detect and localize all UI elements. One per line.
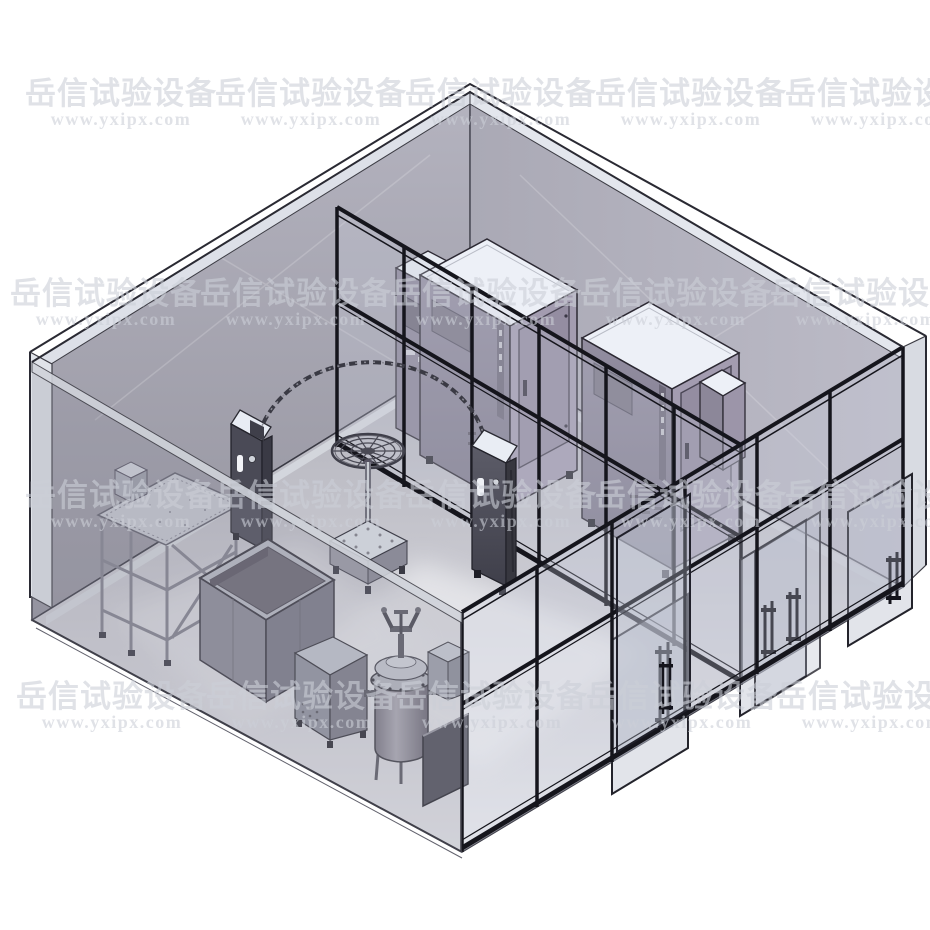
watermark-text: 岳信试验设备 xyxy=(595,478,787,514)
watermark-url: www.yxipx.com xyxy=(802,712,930,732)
watermark-text: 岳信试验设备 xyxy=(215,478,407,514)
watermark-url: www.yxipx.com xyxy=(431,109,572,129)
watermark-text: 岳信试验设备 xyxy=(200,276,392,312)
watermark-text: 岳信试验设备 xyxy=(396,679,588,715)
watermark-url: www.yxipx.com xyxy=(811,109,930,129)
watermark-text: 岳信试验设备 xyxy=(776,679,930,715)
watermark-url: www.yxipx.com xyxy=(36,309,177,329)
watermark-text: 岳信试验设备 xyxy=(16,679,208,715)
watermark-text: 岳信试验设备 xyxy=(595,76,787,112)
watermark-url: www.yxipx.com xyxy=(796,309,930,329)
watermark-url: www.yxipx.com xyxy=(606,309,747,329)
watermark-url: www.yxipx.com xyxy=(811,511,930,531)
cad-render-canvas: 岳信试验设备www.yxipx.com岳信试验设备www.yxipx.com岳信… xyxy=(0,0,930,930)
watermark-text: 岳信试验设备 xyxy=(770,276,930,312)
watermark-text: 岳信试验设备 xyxy=(586,679,778,715)
watermark-text: 岳信试验设备 xyxy=(25,478,217,514)
watermark-text: 岳信试验设备 xyxy=(390,276,582,312)
watermark-text: 岳信试验设备 xyxy=(25,76,217,112)
watermark-text: 岳信试验设备 xyxy=(10,276,202,312)
watermark-url: www.yxipx.com xyxy=(42,712,183,732)
test-lab-3d-scene: 岳信试验设备www.yxipx.com岳信试验设备www.yxipx.com岳信… xyxy=(0,0,930,930)
tower-knob xyxy=(249,456,256,463)
watermark-text: 岳信试验设备 xyxy=(785,76,930,112)
watermark-url: www.yxipx.com xyxy=(241,511,382,531)
watermark-text: 岳信试验设备 xyxy=(215,76,407,112)
watermark-url: www.yxipx.com xyxy=(416,309,557,329)
watermark-text: 岳信试验设备 xyxy=(580,276,772,312)
watermark-text: 岳信试验设备 xyxy=(405,478,597,514)
watermark-url: www.yxipx.com xyxy=(431,511,572,531)
watermark-url: www.yxipx.com xyxy=(422,712,563,732)
watermark-url: www.yxipx.com xyxy=(612,712,753,732)
watermark-url: www.yxipx.com xyxy=(621,511,762,531)
watermark-url: www.yxipx.com xyxy=(51,109,192,129)
watermark-text: 岳信试验设备 xyxy=(785,478,930,514)
watermark-url: www.yxipx.com xyxy=(51,511,192,531)
watermark-url: www.yxipx.com xyxy=(241,109,382,129)
watermark-url: www.yxipx.com xyxy=(232,712,373,732)
tower-slot xyxy=(237,455,243,472)
watermark-text: 岳信试验设备 xyxy=(206,679,398,715)
watermark-url: www.yxipx.com xyxy=(226,309,367,329)
watermark-url: www.yxipx.com xyxy=(621,109,762,129)
watermark-text: 岳信试验设备 xyxy=(405,76,597,112)
